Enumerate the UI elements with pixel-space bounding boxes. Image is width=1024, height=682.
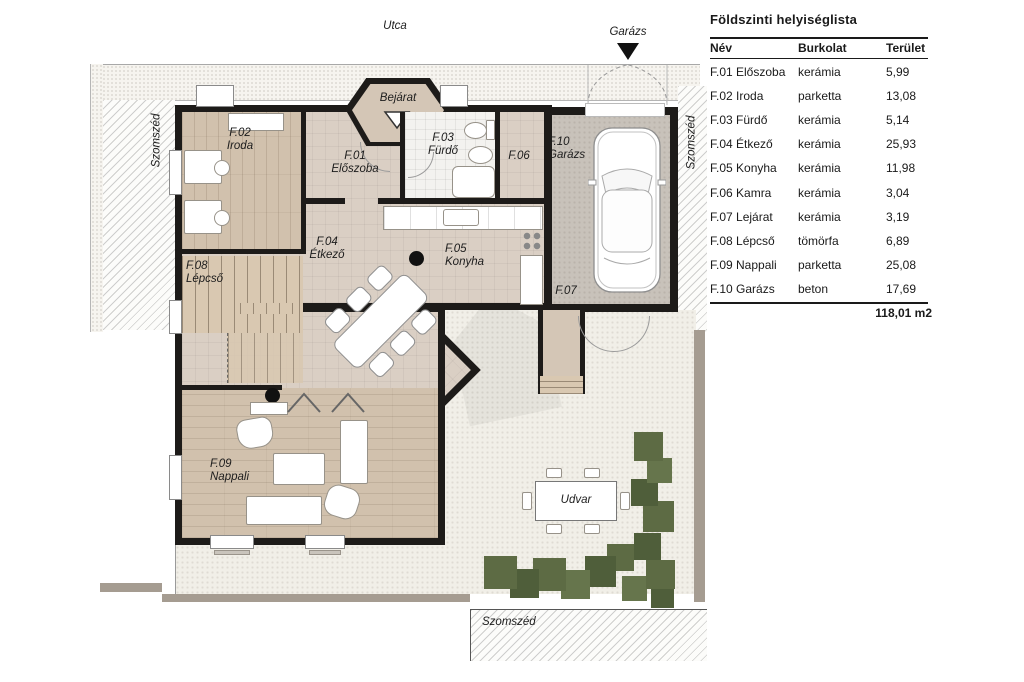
room-label-f08: F.08 Lépcső — [186, 260, 242, 286]
wall-iroda-eloszoba — [301, 112, 306, 251]
wall-kitchen-top — [378, 198, 545, 204]
kitchen-sink — [443, 209, 479, 226]
room-list-header: Név Burkolat Terület — [710, 41, 928, 55]
room-label-f01: F.01 Előszoba — [312, 150, 398, 176]
room-label-f06: F.06 — [497, 150, 541, 163]
wall-eloszoba-etkezo — [303, 198, 345, 204]
room-label-f05: F.05 Konyha — [445, 243, 509, 269]
halfwall-zigzag-icon — [286, 390, 376, 416]
bathtub — [452, 166, 495, 198]
window-ledge-1 — [214, 550, 250, 555]
udvar-chair-5 — [522, 492, 532, 510]
window-top-iroda — [196, 85, 234, 107]
garage-entry-label: Garázs — [598, 26, 658, 39]
udvar-chair-3 — [546, 524, 562, 534]
room-list-row: F.05 Konyhakerámia11,98 — [710, 156, 928, 180]
room-list-row: F.08 Lépcsőtömörfa6,89 — [710, 229, 928, 253]
fence-bottom — [162, 594, 470, 602]
floorplan-page: Utca Garázs Szomszéd Szomszéd Szomszéd — [0, 0, 1024, 682]
column-header-name: Név — [710, 41, 798, 55]
street-left-strip — [90, 64, 103, 332]
room-label-f02: F.02 Iroda — [200, 127, 280, 153]
plot-left-line — [175, 545, 176, 594]
office-chair-1 — [214, 160, 230, 176]
total-area: 118,01 m2 — [714, 306, 932, 320]
wall-eloszoba-furdo — [400, 112, 405, 203]
street-label: Utca — [360, 20, 430, 33]
room-list-rows: F.01 Előszobakerámia5,99 F.02 Irodaparke… — [710, 60, 928, 301]
rule-top — [710, 37, 928, 39]
garage-door-gap — [585, 103, 665, 117]
rule-bottom — [710, 302, 928, 304]
neighbor-left-label: Szomszéd — [151, 106, 164, 176]
udvar-chair-1 — [546, 468, 562, 478]
room-list-row: F.04 Étkezőkerámia25,93 — [710, 132, 928, 156]
room-list-row: F.09 Nappaliparketta25,08 — [710, 253, 928, 277]
garage-entry-arrow-icon — [617, 43, 639, 60]
window-left-nappali — [169, 455, 182, 500]
window-left-stairs — [169, 300, 182, 334]
window-left-iroda — [169, 150, 182, 195]
stove-burners-icon — [521, 230, 543, 252]
toilet-tank — [486, 120, 495, 140]
coffee-table — [273, 453, 325, 485]
bush-cluster — [0, 0, 1, 1]
room-list-row: F.10 Garázsbeton17,69 — [710, 277, 928, 301]
room-label-f10: F.10 Garázs — [548, 136, 600, 162]
stairs-door-gap — [240, 303, 298, 314]
room-label-f04: F.04 Étkező — [295, 236, 359, 262]
room-list-panel: Földszinti helyiséglista Név Burkolat Te… — [710, 10, 932, 330]
wall-iroda-bottom — [182, 249, 306, 254]
fence-right — [694, 330, 705, 602]
window-ledge-2 — [309, 550, 341, 555]
udvar-chair-4 — [584, 524, 600, 534]
neighbor-bottom-label: Szomszéd — [482, 616, 536, 629]
fireplace-hearth — [250, 402, 288, 415]
rule-header — [710, 58, 928, 59]
room-label-f07: F.07 — [548, 285, 584, 298]
sofa-bottom — [246, 496, 322, 525]
courtyard-label: Udvar — [535, 494, 617, 507]
room-label-f09: F.09 Nappali — [210, 458, 274, 484]
fireplace-dot — [265, 388, 280, 403]
udvar-chair-6 — [620, 492, 630, 510]
garage-door-swing-icon — [585, 60, 670, 106]
column-header-flooring: Burkolat — [798, 41, 886, 55]
udvar-chair-2 — [584, 468, 600, 478]
room-list-row: F.07 Lejáratkerámia3,19 — [710, 205, 928, 229]
window-bottom-nappali-2 — [305, 535, 345, 549]
room-list-row: F.03 Fürdőkerámia5,14 — [710, 108, 928, 132]
neighbor-right-label: Szomszéd — [686, 108, 699, 178]
fence-left-piece — [100, 583, 162, 592]
room-list-row: F.01 Előszobakerámia5,99 — [710, 60, 928, 84]
column-header-area: Terület — [886, 41, 928, 55]
office-chair-2 — [214, 210, 230, 226]
neighbor-left-hatch — [103, 100, 175, 330]
entrance-label: Bejárat — [365, 92, 431, 105]
room-list-row: F.02 Irodaparketta13,08 — [710, 84, 928, 108]
dining-table — [316, 258, 444, 386]
stairs-lower-flight — [227, 333, 303, 383]
window-top-furdo — [440, 85, 468, 107]
kitchen-cabinet — [520, 255, 543, 305]
room-list-title: Földszinti helyiséglista — [710, 12, 857, 27]
terrace-steps — [540, 376, 583, 394]
sofa-right — [340, 420, 368, 484]
room-label-f03: F.03 Fürdő — [413, 132, 473, 158]
flue-dot-dining — [409, 251, 424, 266]
room-list-row: F.06 Kamrakerámia3,04 — [710, 180, 928, 204]
window-bottom-nappali-1 — [210, 535, 254, 549]
floor-plan: Utca Garázs Szomszéd Szomszéd Szomszéd — [0, 0, 710, 682]
